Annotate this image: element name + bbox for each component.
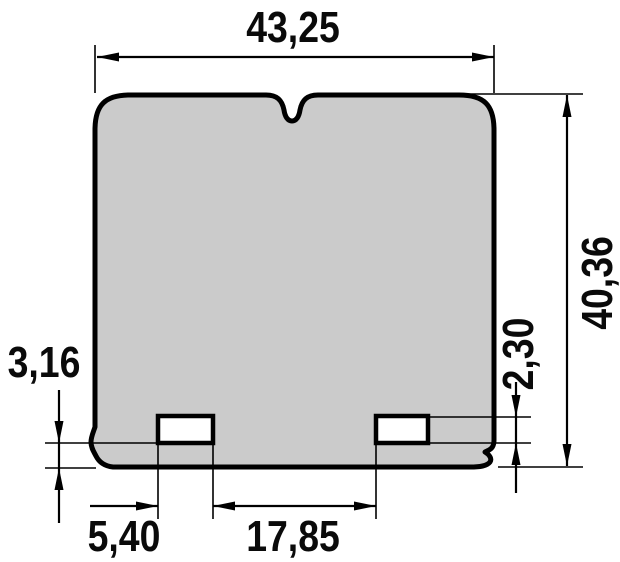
arrow-left-icon [97, 53, 119, 62]
technical-drawing: 43,25 40,36 2,30 3,16 5,40 17,85 [0, 0, 620, 562]
dim-slot-left-offset [90, 502, 158, 511]
arrow-right-icon [354, 502, 376, 511]
arrow-up-icon [55, 468, 64, 490]
dim-slot-left-offset-label: 5,40 [88, 512, 161, 562]
part-outline [91, 95, 494, 467]
arrow-up-icon [563, 95, 572, 117]
dim-slot-height-label: 2,30 [494, 318, 544, 391]
dim-overall-width-label: 43,25 [246, 3, 340, 53]
dim-slot-spacing [213, 502, 376, 511]
part [91, 95, 494, 467]
dim-overall-height [563, 95, 572, 466]
arrow-right-icon [472, 53, 494, 62]
arrow-right-icon [136, 502, 158, 511]
arrow-down-icon [512, 395, 521, 417]
dim-slot-height [512, 382, 521, 493]
arrow-up-icon [512, 443, 521, 465]
dim-bottom-offset [55, 390, 64, 523]
dim-overall-height-label: 40,36 [573, 236, 620, 330]
arrow-down-icon [563, 444, 572, 466]
slot-right [376, 416, 428, 443]
dim-overall-width [97, 53, 494, 62]
arrow-down-icon [55, 421, 64, 443]
slot-left [158, 416, 213, 443]
arrow-left-icon [213, 502, 235, 511]
drawing-canvas [0, 0, 620, 562]
dim-bottom-offset-label: 3,16 [8, 338, 81, 388]
dim-slot-spacing-label: 17,85 [246, 512, 340, 562]
